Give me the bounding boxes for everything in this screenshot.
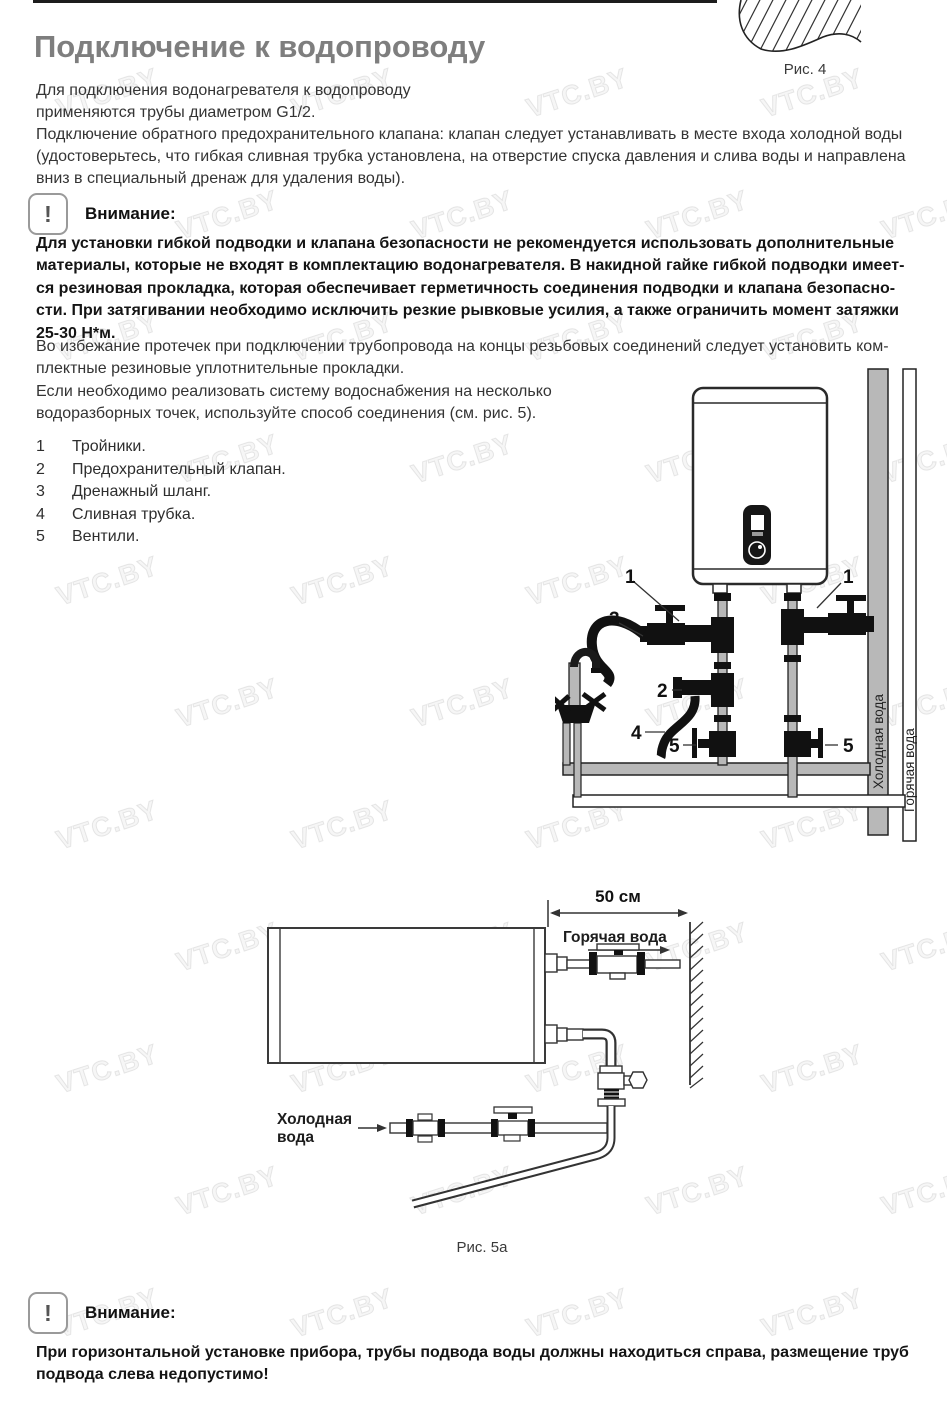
dimension-label: 50 см <box>595 887 641 906</box>
legend-item: 3 Дренажный шланг. <box>36 483 286 506</box>
cold-supply-line <box>358 1107 607 1142</box>
legend-num: 5 <box>36 528 72 546</box>
faucet-cold-drop <box>563 723 570 765</box>
intro-paragraph: Для подключения водонагревателя к водопр… <box>36 80 926 190</box>
legend-label: Вентили. <box>72 528 139 546</box>
wall-hatching <box>690 922 703 1088</box>
fig5a-caption: Рис. 5а <box>407 1239 557 1256</box>
manual-page: VTC.BYVTC.BYVTC.BYVTC.BYVTC.BYVTC.BYVTC.… <box>0 0 947 1428</box>
shutoff-valve-left <box>692 728 736 758</box>
warning2-paragraph: При горизонтальной установке прибора, тр… <box>36 1342 936 1387</box>
fig5a-cold-label-1: Холодная <box>277 1111 352 1128</box>
faucet-hot-drop <box>574 723 581 797</box>
callout-4: 4 <box>631 723 642 744</box>
legend-label: Предохранительный клапан. <box>72 461 286 479</box>
legend-item: 2 Предохранительный клапан. <box>36 461 286 484</box>
legend-num: 1 <box>36 438 72 456</box>
hatch-lines <box>713 0 863 56</box>
fig5-piping-diagram: 1 1 3 2 4 5 5 Холодная вода Горячая вода <box>555 365 945 845</box>
safety-valve-tee <box>673 673 734 707</box>
hot-bottom-pipe <box>573 795 905 807</box>
legend-num: 4 <box>36 506 72 524</box>
water-heater-tank <box>693 388 827 593</box>
dimension-50cm: 50 см <box>548 887 688 927</box>
warning-icon: ! <box>28 1292 68 1334</box>
legend-item: 4 Сливная трубка. <box>36 506 286 529</box>
shutoff-valve-right <box>784 728 823 758</box>
hot-water-label: Горячая вода <box>902 728 917 812</box>
cold-inlet-assembly <box>545 1025 647 1106</box>
fig4-caption: Рис. 4 <box>740 61 870 78</box>
control-panel <box>743 505 771 565</box>
legend-label: Дренажный шланг. <box>72 483 211 501</box>
legend-label: Тройники. <box>72 438 146 456</box>
legend-num: 3 <box>36 483 72 501</box>
callout-5-left: 5 <box>669 736 680 757</box>
faucet <box>555 652 605 723</box>
callout-1-right: 1 <box>843 567 854 588</box>
multi-point-paragraph: Если необходимо реализовать систему водо… <box>36 381 636 425</box>
horizontal-tank <box>268 928 545 1063</box>
warning2-label: Внимание: <box>85 1303 176 1323</box>
warning1-paragraph: Для установки гибкой подводки и клапана … <box>36 233 936 345</box>
fig4-hatched-wall <box>713 0 863 56</box>
warning1-label: Внимание: <box>85 204 176 224</box>
callout-3: 3 <box>609 609 620 630</box>
callout-5-right: 5 <box>843 736 854 757</box>
fig5a-horizontal-diagram: 50 см Горячая вода <box>240 880 710 1280</box>
drain-hose <box>592 621 643 684</box>
legend-item: 5 Вентили. <box>36 528 286 551</box>
callout-1-left: 1 <box>625 567 636 588</box>
legend-list: 1 Тройники. 2 Предохранительный клапан. … <box>36 438 286 551</box>
legend-num: 2 <box>36 461 72 479</box>
legend-label: Сливная трубка. <box>72 506 195 524</box>
exclamation-glyph: ! <box>44 1300 52 1327</box>
page-title: Подключение к водопроводу <box>34 29 485 65</box>
warning-icon: ! <box>28 193 68 235</box>
callout-2: 2 <box>657 681 668 702</box>
cold-water-label: Холодная вода <box>871 694 886 789</box>
fig5a-cold-label-2: вода <box>277 1129 314 1146</box>
cold-bottom-pipe <box>563 763 870 775</box>
exclamation-glyph: ! <box>44 201 52 228</box>
legend-item: 1 Тройники. <box>36 438 286 461</box>
top-rule <box>33 0 717 3</box>
